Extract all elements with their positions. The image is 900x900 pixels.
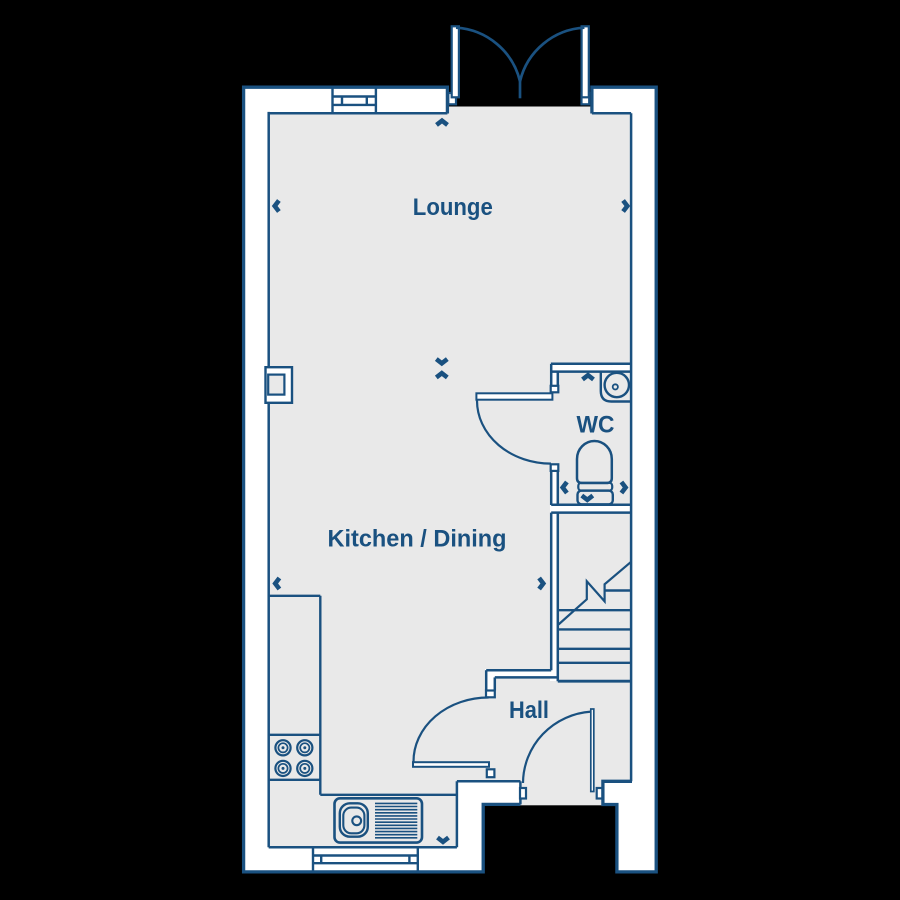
svg-text:Kitchen / Dining: Kitchen / Dining [328, 526, 507, 553]
svg-text:Lounge: Lounge [413, 194, 493, 221]
svg-text:WC: WC [577, 411, 615, 438]
svg-text:Hall: Hall [509, 697, 549, 724]
